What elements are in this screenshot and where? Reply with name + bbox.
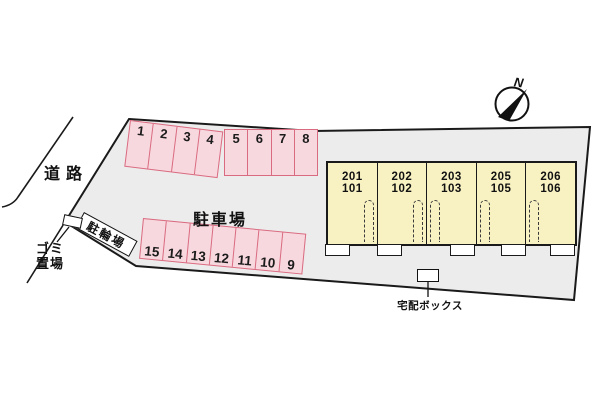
building: 201 101 202 102 203 103 205 105 (326, 161, 577, 246)
entry-stairs-icon (364, 200, 374, 242)
parking-space: 7 (271, 130, 294, 175)
building-unit: 205 105 (476, 163, 526, 244)
delivery-box (417, 269, 439, 282)
unit-number-lower: 102 (378, 183, 427, 195)
building-unit: 206 106 (525, 163, 575, 244)
unit-number-upper: 206 (526, 171, 575, 183)
garbage-leader-line (57, 227, 69, 242)
unit-number-upper: 205 (477, 171, 526, 183)
parking-row-top-right: 5 6 7 8 (224, 129, 318, 176)
garbage-area-label-line1: ゴミ (36, 241, 76, 256)
road-label: 道路 (44, 160, 88, 184)
unit-number-upper: 201 (328, 171, 377, 183)
entry-stairs-icon (430, 200, 440, 242)
compass-icon (496, 88, 529, 122)
unit-number-lower: 103 (427, 183, 476, 195)
parking-space: 6 (247, 130, 270, 175)
entry-stairs-icon (480, 200, 490, 242)
entrance-porch (550, 244, 575, 256)
garbage-area-label-line2: 置場 (36, 256, 76, 271)
unit-number-lower: 106 (526, 183, 575, 195)
entrance-porch (450, 244, 475, 256)
delivery-box-label: 宅配ボックス (392, 298, 468, 313)
entrance-porch (501, 244, 526, 256)
parking-space: 9 (278, 232, 305, 273)
parking-space: 4 (194, 129, 223, 176)
entrance-porch (325, 244, 350, 256)
entry-stairs-icon (529, 200, 539, 242)
unit-number-lower: 105 (477, 183, 526, 195)
site-plan: N 1 2 3 4 5 6 7 8 15 14 13 12 11 10 9 20… (0, 0, 600, 400)
building-unit: 201 101 (328, 163, 377, 244)
parking-lot-label: 駐車場 (193, 206, 247, 230)
parking-space: 5 (225, 130, 247, 175)
unit-number-lower: 101 (328, 183, 377, 195)
entry-stairs-icon (413, 200, 423, 242)
unit-number-upper: 202 (378, 171, 427, 183)
garbage-area-label: ゴミ 置場 (36, 241, 76, 272)
building-unit: 203 103 (426, 163, 476, 244)
entrance-porch (377, 244, 402, 256)
unit-number-upper: 203 (427, 171, 476, 183)
parking-space: 8 (294, 130, 317, 175)
building-unit: 202 102 (377, 163, 427, 244)
